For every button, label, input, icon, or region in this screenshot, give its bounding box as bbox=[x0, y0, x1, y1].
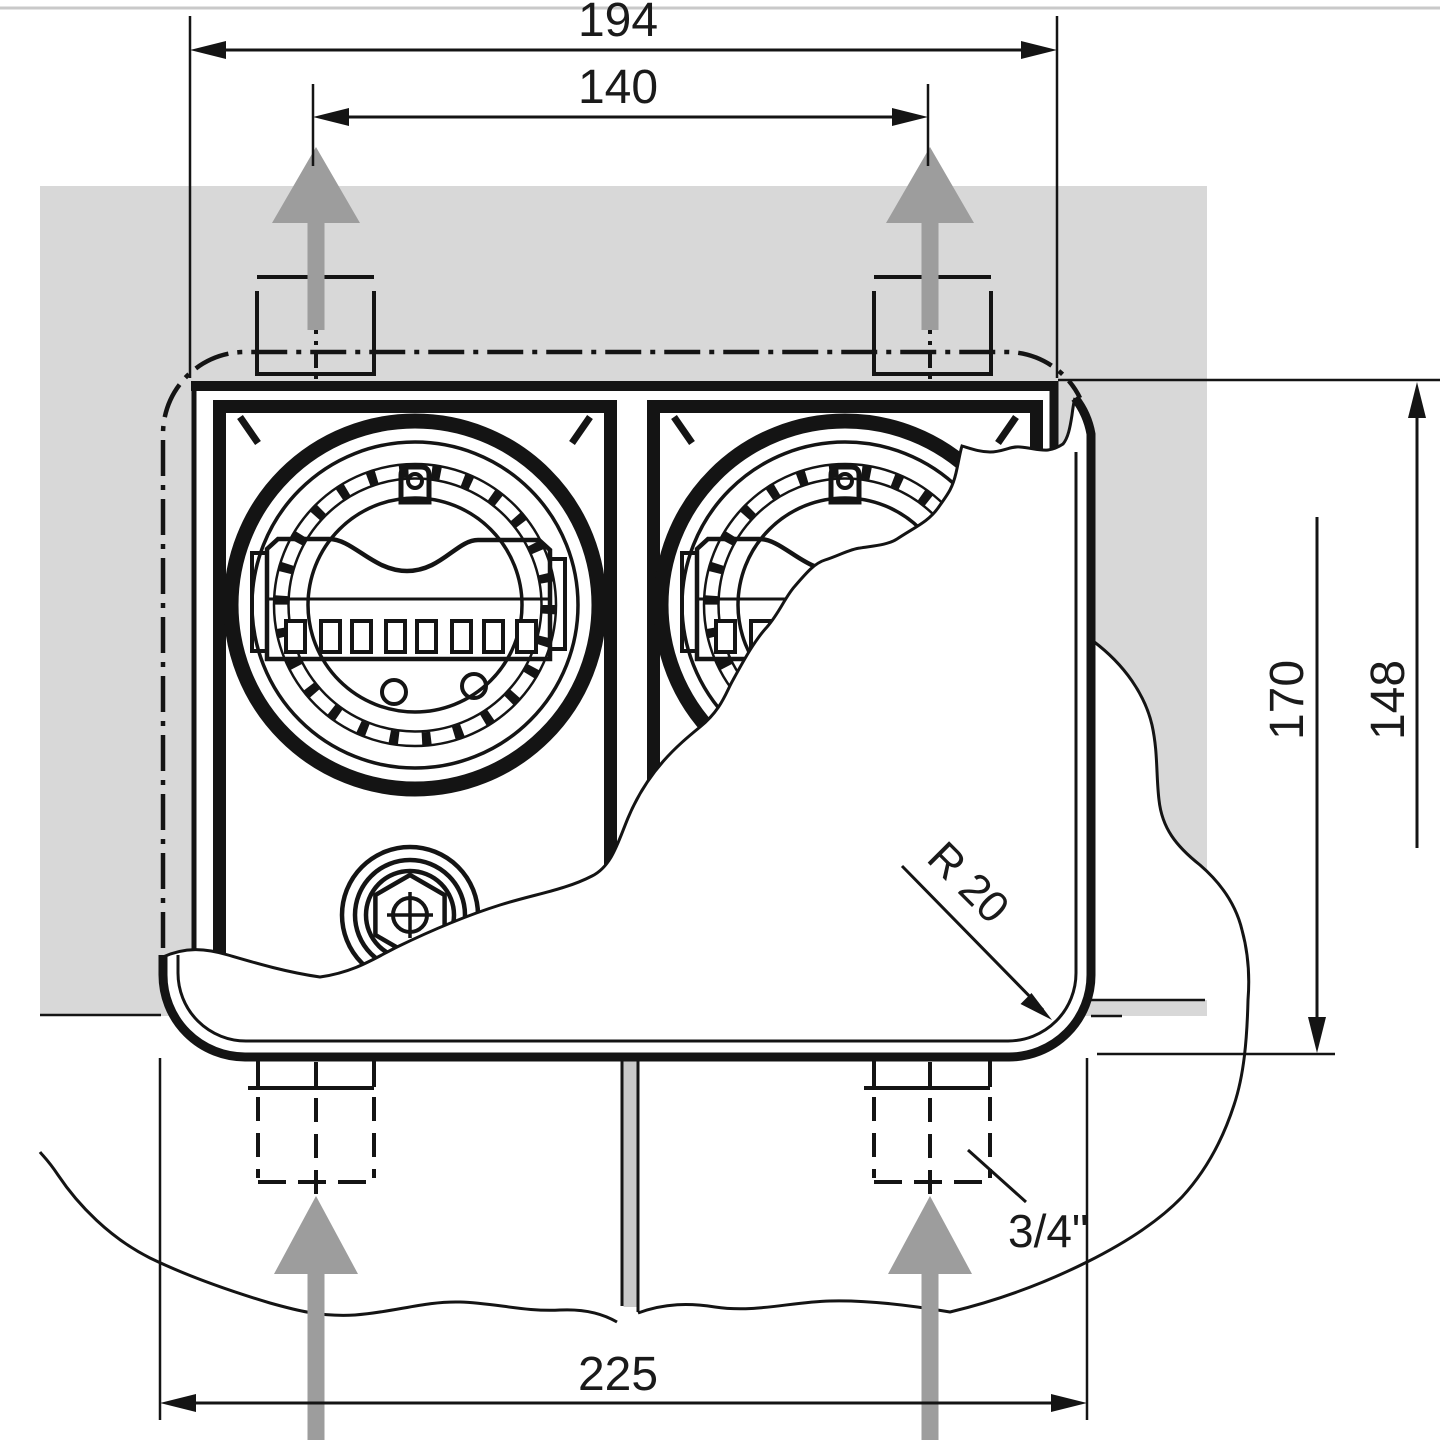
dim-label-148: 148 bbox=[1362, 660, 1415, 740]
dim-arrow-right-icon bbox=[1051, 1394, 1087, 1412]
dim-arrow-right-icon bbox=[1021, 41, 1057, 59]
dim-arrow-up-icon bbox=[1408, 382, 1426, 418]
dimension-140: 140 bbox=[313, 61, 928, 166]
dim-label-140: 140 bbox=[578, 61, 658, 114]
bracket-bottom-left-solid bbox=[248, 1060, 374, 1088]
dim-label-225: 225 bbox=[578, 1348, 658, 1401]
dimension-drawing: 194 140 225 170 148 bbox=[0, 0, 1440, 1440]
dim-arrow-left-icon bbox=[160, 1394, 196, 1412]
dim-label-conduit: 3/4" bbox=[1008, 1205, 1088, 1257]
dim-arrow-down-icon bbox=[1308, 1017, 1326, 1053]
wall-joint-strip bbox=[624, 1057, 637, 1307]
dimension-148: 148 bbox=[1362, 382, 1426, 848]
leader-line-conduit bbox=[968, 1150, 1026, 1202]
dim-label-170: 170 bbox=[1261, 660, 1314, 740]
dim-arrow-right-icon bbox=[892, 108, 928, 126]
dim-label-194: 194 bbox=[578, 0, 658, 47]
wall-edge-band bbox=[1091, 1001, 1207, 1016]
dim-arrow-left-icon bbox=[190, 41, 226, 59]
dimension-conduit: 3/4" bbox=[968, 1150, 1088, 1257]
bracket-bottom-right-solid bbox=[864, 1060, 990, 1088]
dimension-drawing-page: 194 140 225 170 148 bbox=[0, 0, 1440, 1440]
dim-arrow-left-icon bbox=[313, 108, 349, 126]
